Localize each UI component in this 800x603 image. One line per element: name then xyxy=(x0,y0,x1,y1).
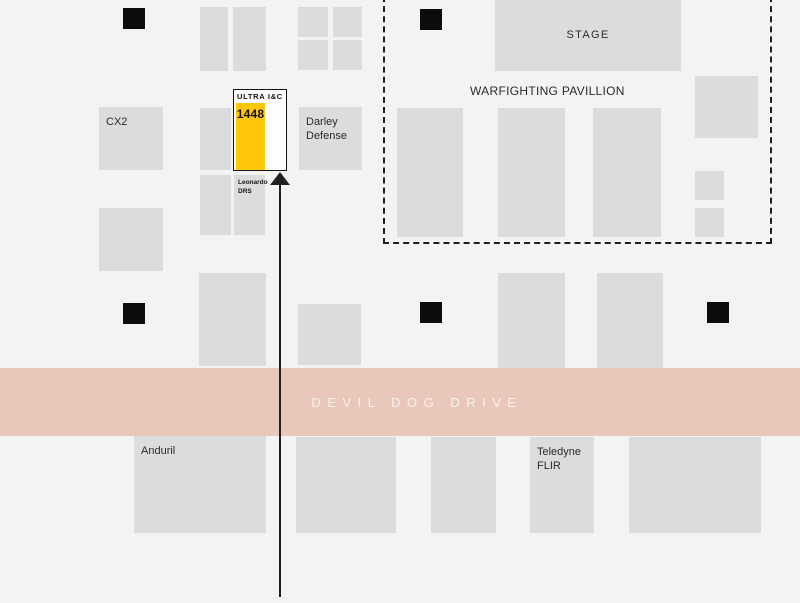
booth-label-leonardo-drs: Leonardo DRS xyxy=(234,175,265,197)
booth-anduril: Anduril xyxy=(134,436,266,533)
booth-rect xyxy=(498,273,565,368)
booth-rect xyxy=(333,7,362,37)
booth-rect xyxy=(200,108,231,170)
booth-rect xyxy=(200,7,228,71)
booth-label-cx2: CX2 xyxy=(99,107,163,129)
pavilion-label: WARFIGHTING PAVILLION xyxy=(470,84,625,98)
booth-rect xyxy=(333,40,362,70)
booth-rect xyxy=(431,437,496,533)
booth-cx2: CX2 xyxy=(99,107,163,170)
pillar xyxy=(123,8,145,29)
booth-leonardo-drs: Leonardo DRS xyxy=(234,175,265,235)
booth-rect xyxy=(597,273,663,368)
booth-label-teledyne-flir: Teledyne FLIR xyxy=(530,437,594,474)
booth-label-darley-defense: Darley Defense xyxy=(299,107,362,144)
booth-teledyne-flir: Teledyne FLIR xyxy=(530,437,594,533)
warfighting-pavilion-outline xyxy=(383,0,772,244)
booth-darley-defense: Darley Defense xyxy=(299,107,362,170)
booth-number: 1448 xyxy=(236,107,265,121)
devil-dog-drive-road: DEVIL DOG DRIVE xyxy=(0,368,800,436)
arrow-shaft xyxy=(279,184,281,597)
pillar xyxy=(707,302,729,323)
road-label: DEVIL DOG DRIVE xyxy=(0,395,800,410)
booth-1448-highlight: ULTRA I&C 1448 xyxy=(233,89,287,171)
booth-rect xyxy=(298,7,328,37)
booth-1448-fill: 1448 xyxy=(236,103,265,170)
booth-rect xyxy=(296,437,396,533)
booth-rect xyxy=(233,7,266,71)
booth-label-anduril: Anduril xyxy=(134,436,266,458)
booth-rect xyxy=(199,273,266,366)
booth-rect xyxy=(298,40,328,70)
booth-rect xyxy=(629,437,761,533)
pillar xyxy=(420,302,442,323)
booth-rect xyxy=(99,208,163,271)
pillar xyxy=(123,303,145,324)
expo-floor-plan: STAGECX2Darley DefenseLeonardo DRSAnduri… xyxy=(0,0,800,603)
booth-rect xyxy=(298,304,361,365)
ultra-ic-logo: ULTRA I&C xyxy=(234,92,286,101)
booth-rect xyxy=(200,175,231,235)
